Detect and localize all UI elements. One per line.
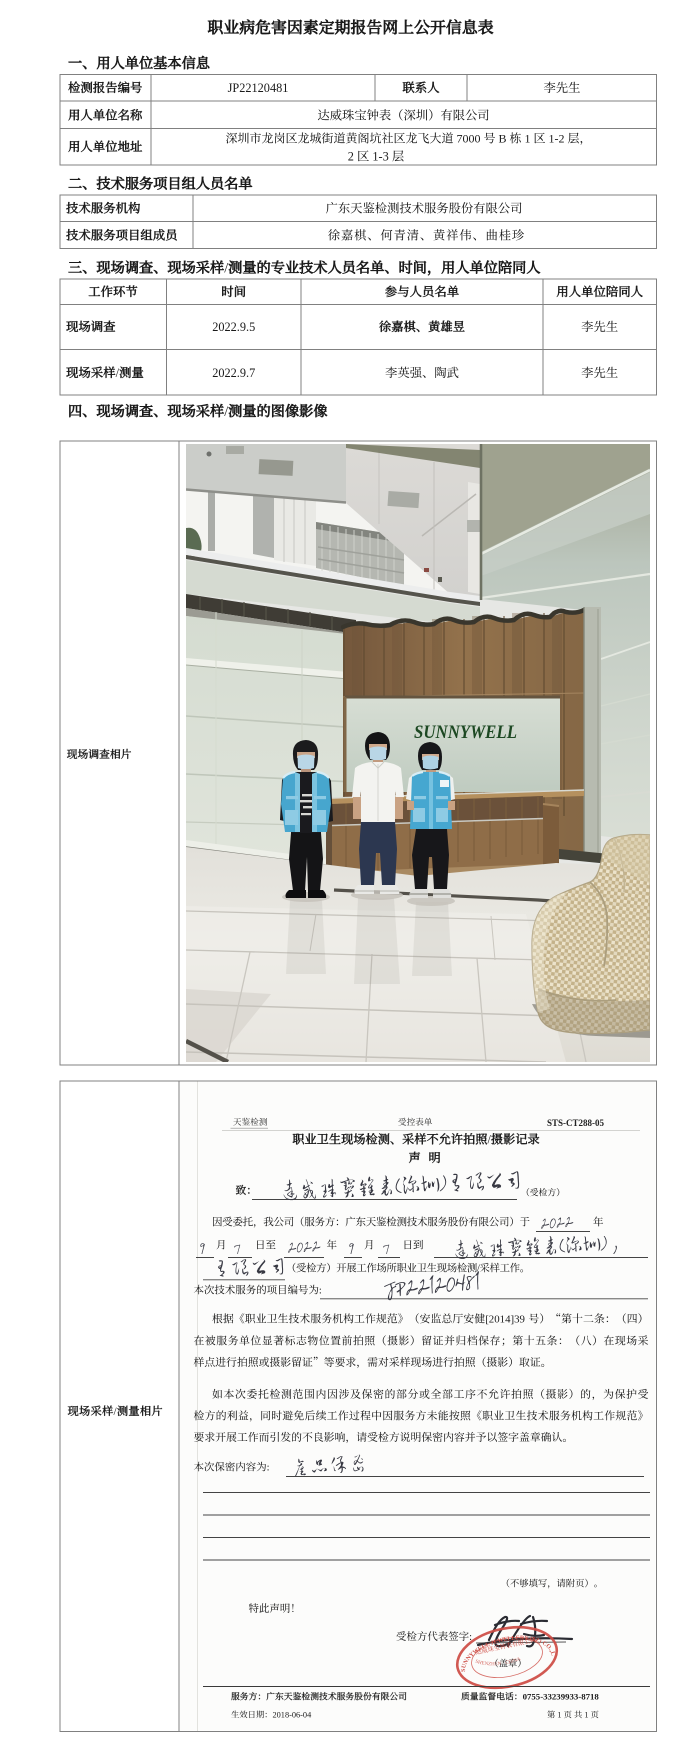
svg-text:STS-CT288-05: STS-CT288-05 [547, 1118, 605, 1128]
svg-text::: : [267, 1463, 270, 1474]
svg-text:B: B [496, 132, 510, 146]
svg-text:[2014]39: [2014]39 [485, 1314, 527, 1326]
svg-text:SUNNYWELL: SUNNYWELL [414, 723, 517, 743]
svg-text:2018-06-04: 2018-06-04 [273, 1711, 313, 1720]
svg-text:/: / [224, 404, 228, 420]
svg-text:1: 1 [555, 1711, 563, 1720]
svg-text:2022.9.5: 2022.9.5 [212, 320, 255, 334]
svg-text:1-3: 1-3 [369, 150, 392, 164]
svg-text:0755-33239933-8718: 0755-33239933-8718 [523, 1692, 600, 1702]
svg-text:1: 1 [522, 132, 534, 146]
svg-text:/: / [116, 366, 120, 380]
svg-text:2022.9.7: 2022.9.7 [212, 366, 255, 380]
svg-text:/: / [224, 261, 228, 277]
svg-text:1-2: 1-2 [546, 132, 568, 146]
svg-text:2: 2 [348, 150, 357, 164]
svg-text:7000: 7000 [454, 132, 484, 146]
svg-text:JP22120481: JP22120481 [228, 81, 289, 95]
svg-text::: : [319, 1286, 322, 1297]
svg-text:1: 1 [582, 1711, 590, 1720]
